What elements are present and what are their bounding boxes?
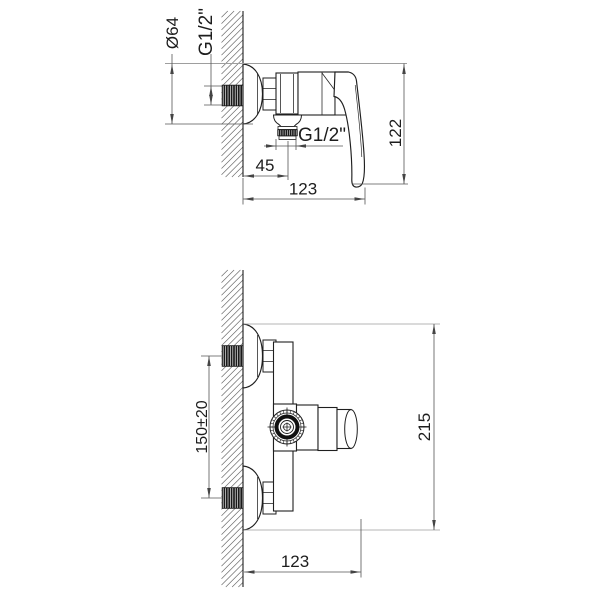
dim-wall-thread: G1/2": [196, 8, 222, 105]
valve-body: [298, 72, 335, 115]
dim-outlet-thread: G1/2": [264, 125, 346, 150]
wall-hatch-bottom: [222, 270, 244, 587]
plan-view: 150±20 215 123: [194, 270, 440, 587]
dim-label-body-height: 122: [386, 119, 405, 147]
inlet-thread-top: [222, 346, 243, 367]
escutcheon-top: [243, 324, 263, 388]
wall-thread: [222, 85, 243, 106]
side-view: Ø64 G1/2" 122 G1/2": [163, 8, 408, 204]
dim-plan-width: 123: [244, 519, 361, 578]
escutcheon-bottom: [243, 466, 263, 530]
drawing-page: Ø64 G1/2" 122 G1/2": [0, 0, 600, 600]
dim-label-escutcheon-diameter: Ø64: [163, 17, 182, 49]
dim-label-plan-width: 123: [281, 552, 309, 571]
escutcheon: [243, 64, 263, 124]
dim-label-side-width: 123: [289, 180, 317, 199]
dim-label-inlet-spacing: 150±20: [194, 400, 211, 453]
lock-nut: [276, 73, 298, 114]
hex-nut: [263, 78, 276, 110]
dim-label-outlet-thread: G1/2": [298, 125, 346, 146]
dim-label-overall-height: 215: [415, 413, 434, 441]
dim-outlet-offset: 45: [243, 141, 288, 180]
handle-cylinders: [297, 405, 358, 451]
dim-inlet-spacing: 150±20: [194, 356, 222, 498]
technical-drawing: Ø64 G1/2" 122 G1/2": [0, 0, 600, 600]
inlet-thread-bottom: [222, 488, 243, 509]
dim-label-outlet-offset: 45: [256, 156, 275, 175]
dim-side-width: 123: [243, 178, 365, 205]
dim-label-wall-thread: G1/2": [196, 8, 217, 56]
